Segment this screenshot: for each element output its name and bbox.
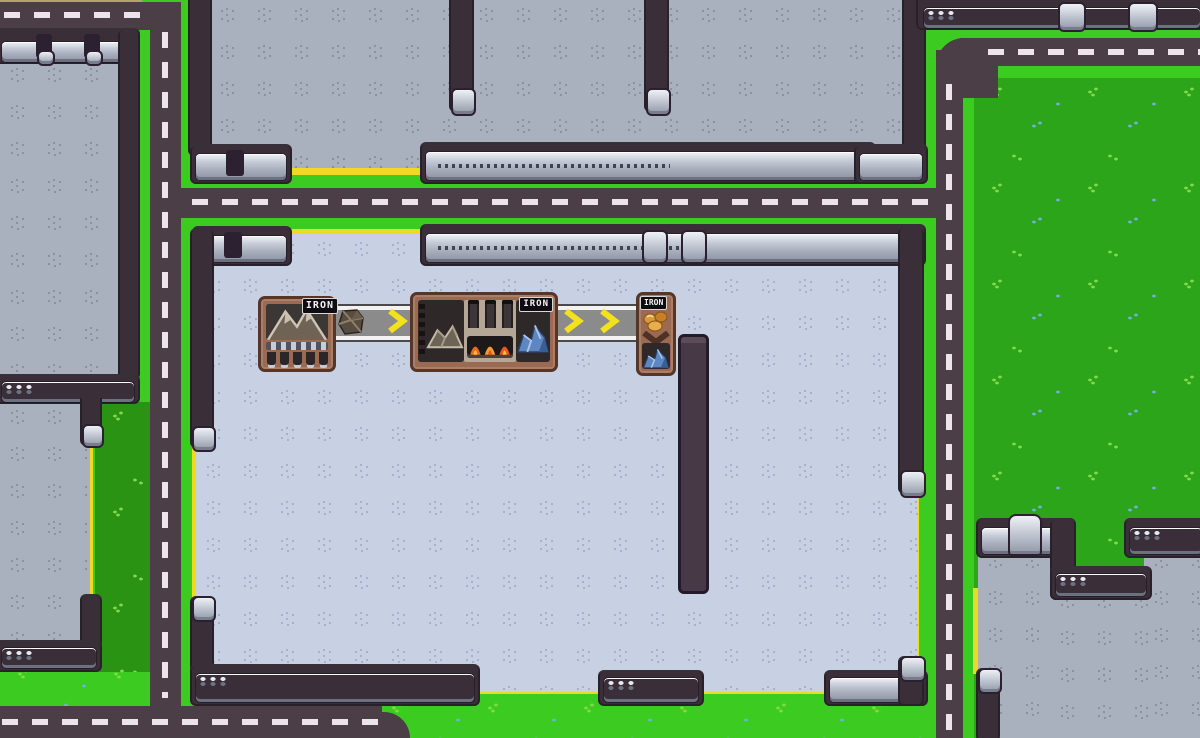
interior-pillar xyxy=(678,334,709,594)
gate-cap xyxy=(642,230,668,264)
pillar-cap xyxy=(978,668,1002,694)
wall-post xyxy=(226,150,244,176)
chimney-icon xyxy=(468,300,479,328)
road-dashes xyxy=(988,49,1200,55)
pillar-cap xyxy=(900,470,926,498)
resource-badge: IRON xyxy=(640,296,667,310)
chimney-icon xyxy=(485,300,496,328)
furnace-body xyxy=(464,300,516,362)
wall-central-left-upper xyxy=(190,228,214,448)
room-bottom-right-floor xyxy=(1050,586,1150,738)
wall-trim xyxy=(604,678,698,702)
conveyor-belt-1[interactable] xyxy=(334,304,414,342)
road-dashes xyxy=(2,719,378,725)
road-dashes xyxy=(946,84,952,738)
belt-arrow-icon xyxy=(562,308,584,334)
pillar-cap xyxy=(82,424,104,448)
drill-tooth xyxy=(267,352,276,365)
wall-trim xyxy=(1130,528,1200,554)
input-teeth xyxy=(419,304,425,358)
wall-post-cap xyxy=(37,50,55,66)
wall-post xyxy=(224,232,242,258)
chimney-icon xyxy=(502,300,513,328)
wall-central-right-upper xyxy=(898,226,924,494)
furnace-chimneys xyxy=(468,300,514,328)
pillar-cap xyxy=(1128,2,1158,32)
drill-tooth xyxy=(280,352,289,365)
room-bottom-right-floor xyxy=(1144,546,1200,738)
iron-ore-pile-icon xyxy=(418,300,464,362)
wall-trim xyxy=(2,42,132,62)
gate-cap xyxy=(1008,514,1042,556)
gate-cap xyxy=(681,230,707,264)
road-dashes xyxy=(192,199,928,205)
game-viewport: IRON xyxy=(0,0,1200,738)
furnace-fire-icon xyxy=(467,336,513,358)
belt-arrow-icon xyxy=(598,308,620,334)
wall-post-cap xyxy=(85,50,103,66)
wall-top-middle-left xyxy=(188,0,212,156)
machine-iron-smelter[interactable]: IRON xyxy=(410,292,558,372)
wall-trim xyxy=(426,152,870,180)
resource-badge: IRON xyxy=(519,297,553,312)
wall-trim xyxy=(426,234,920,262)
miner-output-strip xyxy=(266,342,328,350)
pillar-cap xyxy=(900,656,926,682)
wall-top-left-room-right xyxy=(118,28,140,380)
machine-iron-miner[interactable]: IRON xyxy=(258,296,336,372)
road-dashes xyxy=(4,12,150,18)
miner-drill-teeth xyxy=(267,352,329,366)
room-lower-left-floor xyxy=(0,402,90,646)
pillar-cap xyxy=(646,88,671,116)
pillar-cap xyxy=(192,426,216,452)
wall-trim xyxy=(1056,574,1146,596)
road-dashes xyxy=(162,32,168,698)
pillar-cap xyxy=(451,88,476,116)
wall-trim xyxy=(2,382,134,402)
pillar-cap xyxy=(192,596,216,622)
room-top-left-floor xyxy=(0,60,122,378)
resource-badge: IRON xyxy=(302,298,338,314)
conveyor-belt-2[interactable] xyxy=(556,304,638,342)
iron-ore-chunk-item[interactable] xyxy=(337,308,365,336)
wall-trim xyxy=(860,154,922,180)
blue-ore-pile-icon xyxy=(642,343,670,369)
machine-iron-depot[interactable]: IRON xyxy=(636,292,676,376)
wall-trim xyxy=(196,674,474,702)
gold-nuggets-icon xyxy=(642,311,670,333)
pillar-cap xyxy=(1058,2,1086,32)
belt-arrow-icon xyxy=(386,308,408,334)
drill-tooth xyxy=(293,352,302,365)
drill-tooth xyxy=(306,352,315,365)
wall-trim xyxy=(2,648,96,668)
drill-tooth xyxy=(319,352,328,365)
